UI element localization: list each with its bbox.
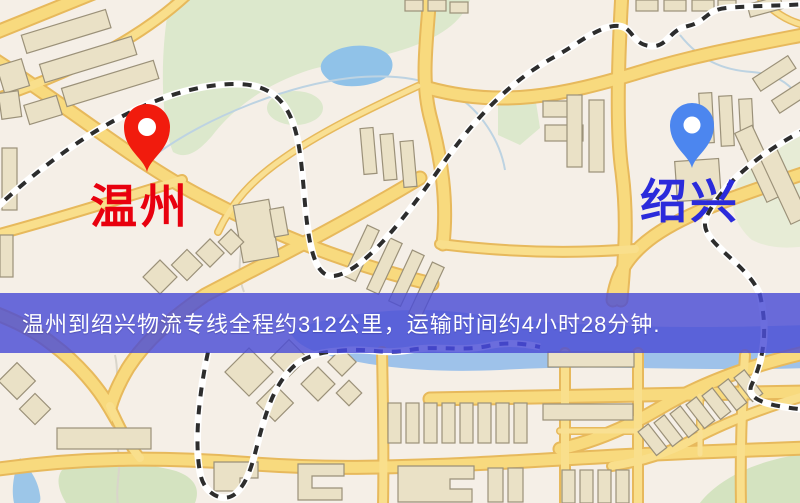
route-info-text: 温州到绍兴物流专线全程约312公里，运输时间约4小时28分钟.	[22, 307, 661, 339]
destination-label: 绍兴	[640, 175, 740, 228]
origin-label: 温州	[90, 180, 190, 233]
destination-pin-hole	[684, 117, 701, 134]
origin-pin-hole	[138, 118, 156, 136]
map-canvas: 温州 绍兴	[0, 0, 800, 503]
logistics-route-map: 温州 绍兴 温州到绍兴物流专线全程约312公里，运输时间约4小时28分钟.	[0, 0, 800, 503]
route-info-banner: 温州到绍兴物流专线全程约312公里，运输时间约4小时28分钟.	[0, 293, 800, 353]
